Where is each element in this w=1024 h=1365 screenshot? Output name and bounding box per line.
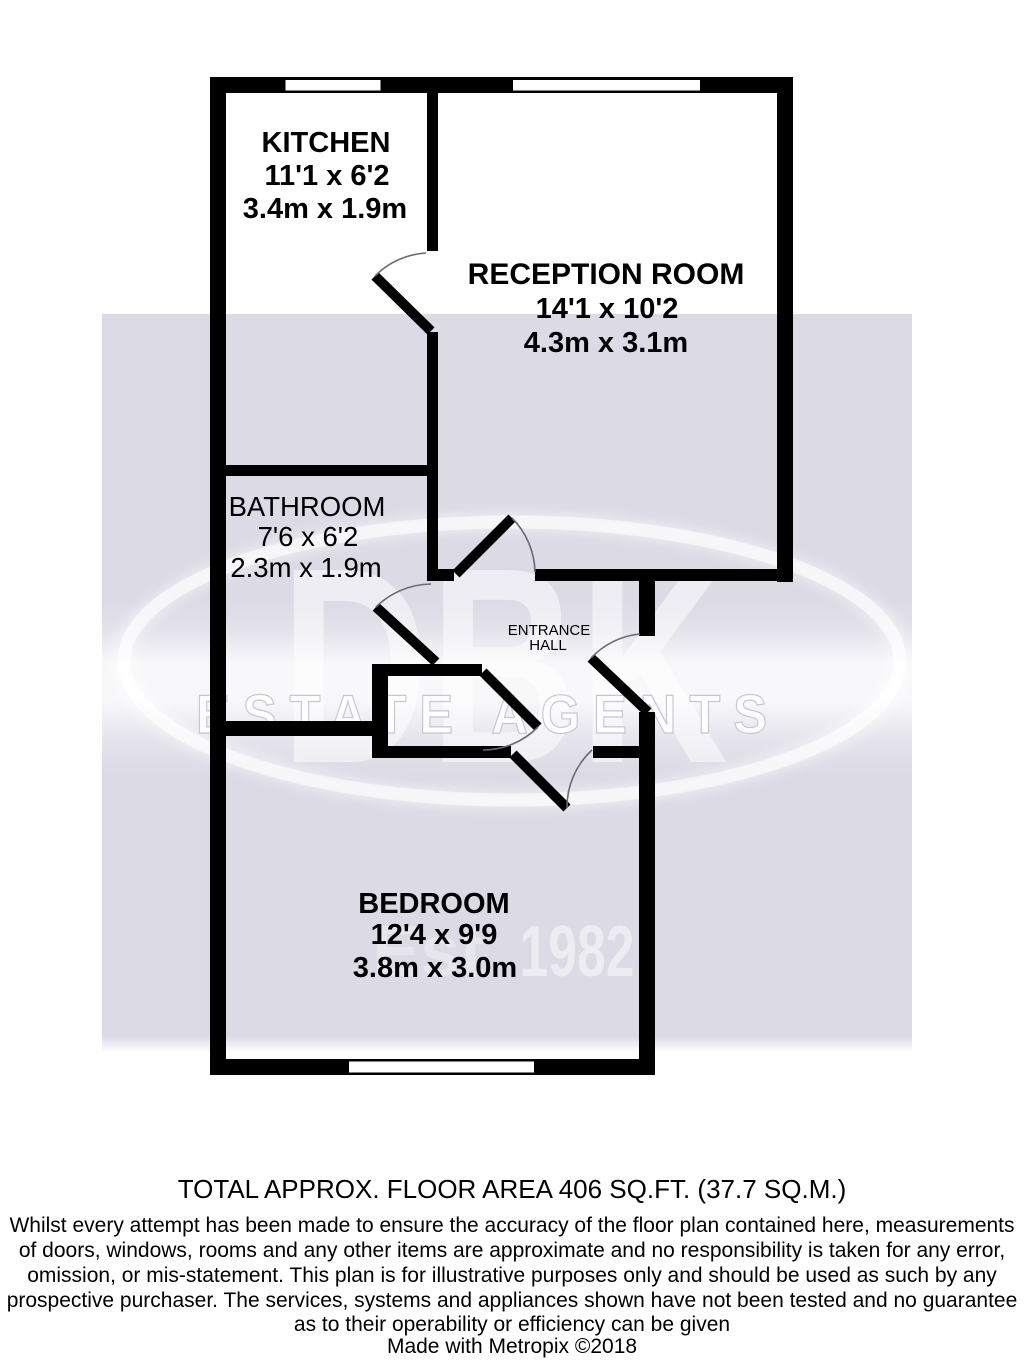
svg-text:11'1 x 6'2: 11'1 x 6'2 [264,160,389,192]
svg-text:as to their operability or eff: as to their operability or efficiency ca… [294,1313,730,1336]
svg-text:of doors, windows, rooms and a: of doors, windows, rooms and any other i… [19,1239,1005,1262]
svg-text:1982: 1982 [520,912,635,992]
svg-text:HALL: HALL [529,637,567,654]
svg-text:omission, or mis-statement. Th: omission, or mis-statement. This plan is… [27,1264,997,1287]
svg-text:14'1 x 10'2: 14'1 x 10'2 [536,293,679,325]
svg-text:Made with Metropix ©2018: Made with Metropix ©2018 [387,1335,637,1358]
svg-text:7'6 x 6'2: 7'6 x 6'2 [258,521,359,552]
svg-text:KITCHEN: KITCHEN [262,127,391,159]
svg-text:12'4 x 9'9: 12'4 x 9'9 [371,919,498,951]
svg-text:3.8m x 3.0m: 3.8m x 3.0m [353,952,517,984]
svg-text:Whilst every attempt has been: Whilst every attempt has been made to en… [9,1214,1014,1237]
svg-text:BATHROOM: BATHROOM [229,491,386,522]
svg-text:TOTAL APPROX. FLOOR AREA 406 S: TOTAL APPROX. FLOOR AREA 406 SQ.FT. (37.… [178,1174,847,1204]
svg-text:RECEPTION ROOM: RECEPTION ROOM [468,258,745,291]
svg-text:2.3m x 1.9m: 2.3m x 1.9m [230,552,381,583]
svg-text:3.4m x 1.9m: 3.4m x 1.9m [243,193,407,225]
svg-text:BEDROOM: BEDROOM [358,888,509,920]
svg-text:prospective purchaser. The ser: prospective purchaser. The services, sys… [7,1289,1018,1312]
svg-text:4.3m x 3.1m: 4.3m x 3.1m [524,327,688,359]
